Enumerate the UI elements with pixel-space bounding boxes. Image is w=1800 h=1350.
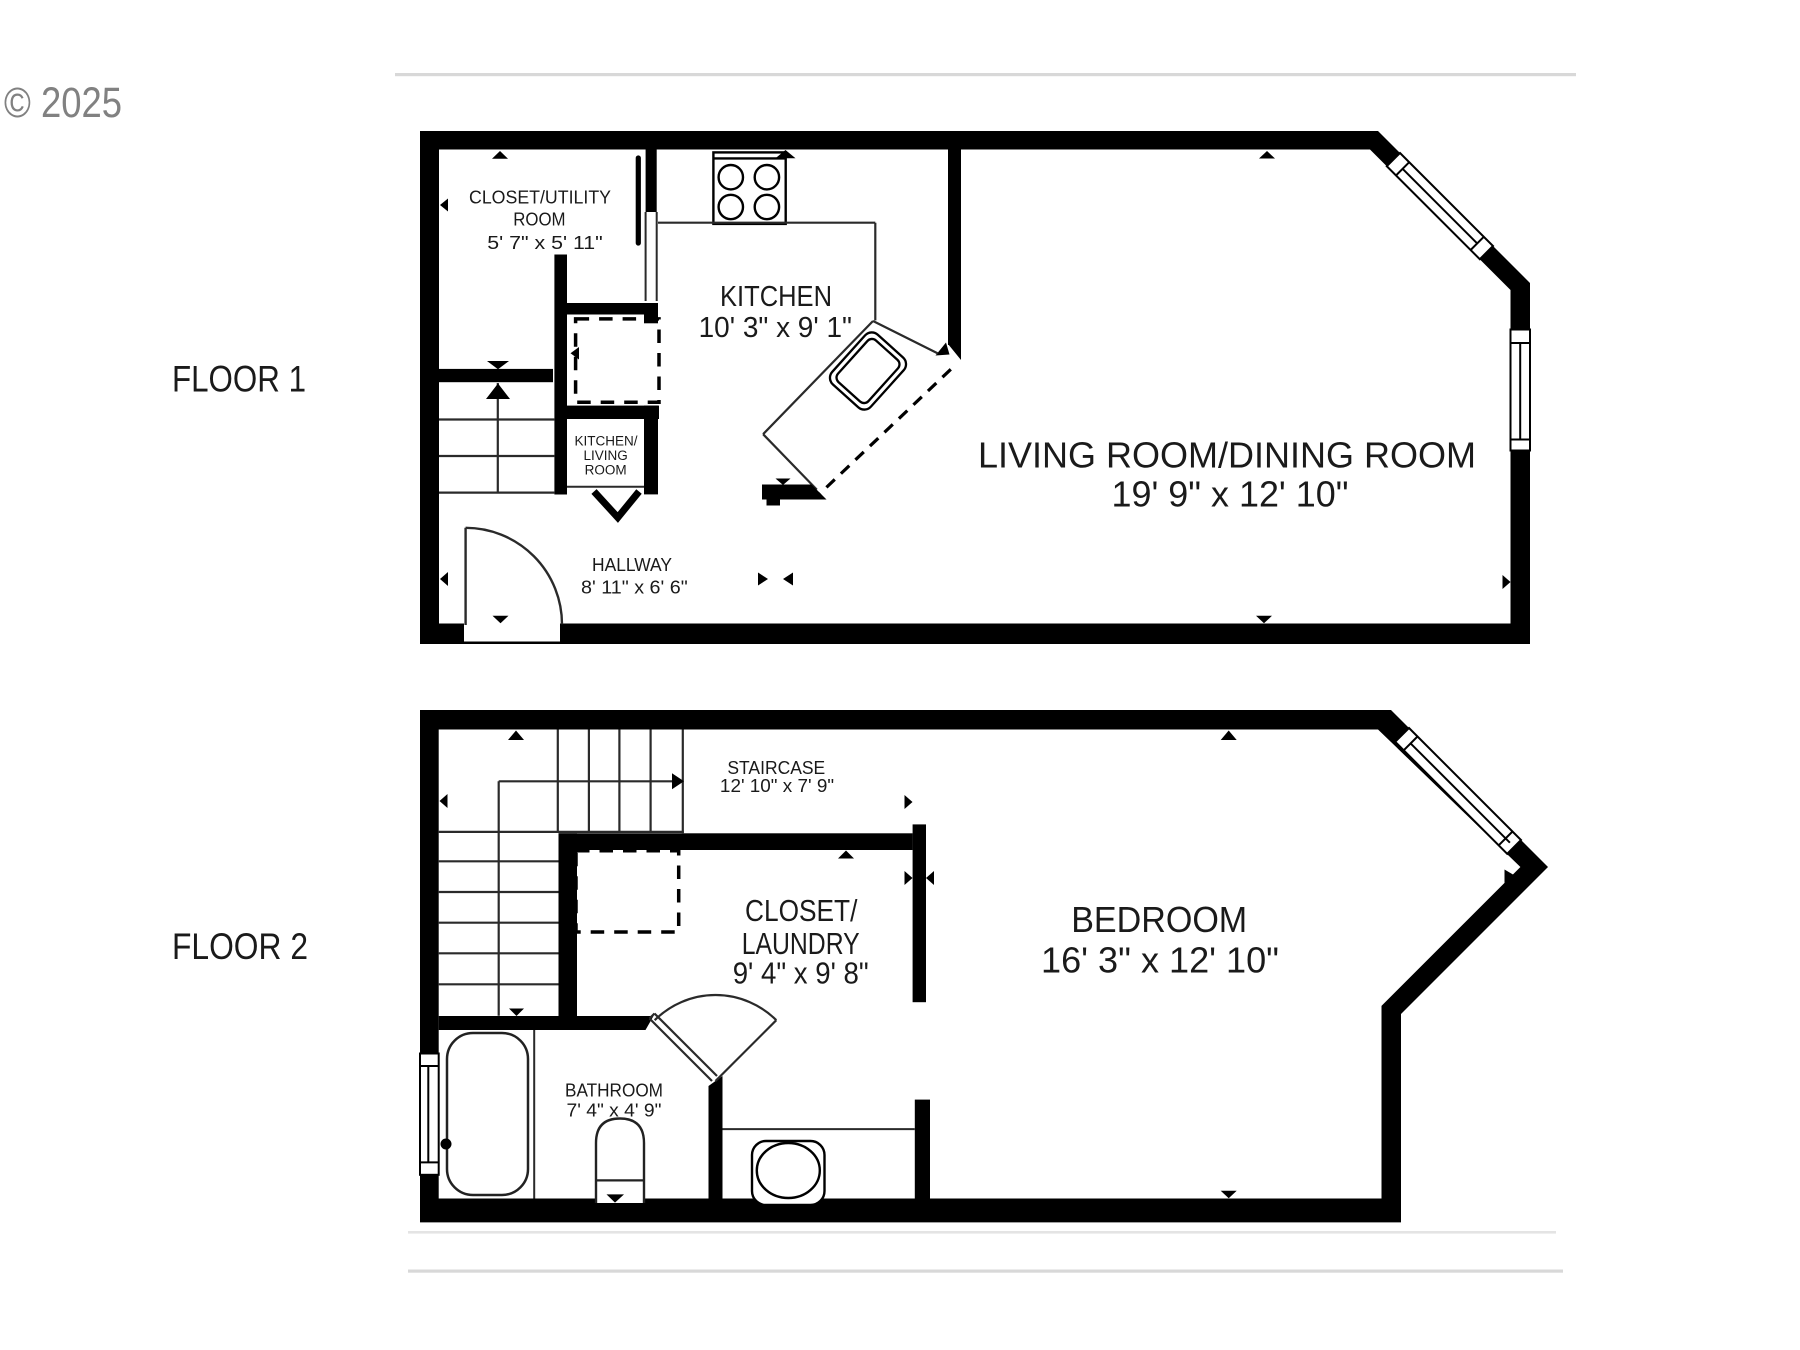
svg-text:KITCHEN/: KITCHEN/ <box>574 434 637 449</box>
svg-text:KITCHEN: KITCHEN <box>720 281 832 313</box>
svg-text:FLOOR 1: FLOOR 1 <box>172 359 306 400</box>
svg-text:8' 11" x 6' 6": 8' 11" x 6' 6" <box>581 576 688 597</box>
svg-text:BEDROOM: BEDROOM <box>1071 899 1247 940</box>
svg-text:LIVING: LIVING <box>583 448 627 463</box>
svg-text:9' 4" x 9' 8": 9' 4" x 9' 8" <box>733 956 869 991</box>
svg-text:16' 3" x 12' 10": 16' 3" x 12' 10" <box>1041 939 1279 980</box>
svg-text:LIVING ROOM/DINING ROOM: LIVING ROOM/DINING ROOM <box>978 435 1476 476</box>
svg-text:© 2025: © 2025 <box>4 79 122 127</box>
svg-text:5' 7" x 5' 11": 5' 7" x 5' 11" <box>487 232 603 253</box>
svg-text:HALLWAY: HALLWAY <box>592 554 672 575</box>
svg-text:CLOSET/UTILITY: CLOSET/UTILITY <box>469 186 611 207</box>
svg-text:ROOM: ROOM <box>585 462 627 477</box>
svg-text:7' 4" x 4' 9": 7' 4" x 4' 9" <box>567 1100 662 1121</box>
svg-text:10' 3" x 9' 1": 10' 3" x 9' 1" <box>699 312 852 344</box>
svg-text:FLOOR 2: FLOOR 2 <box>172 926 308 967</box>
svg-text:BATHROOM: BATHROOM <box>565 1079 663 1100</box>
svg-text:12' 10" x 7' 9": 12' 10" x 7' 9" <box>720 775 834 796</box>
svg-text:CLOSET/: CLOSET/ <box>745 893 858 928</box>
svg-text:19' 9" x 12' 10": 19' 9" x 12' 10" <box>1112 474 1349 515</box>
svg-text:ROOM: ROOM <box>513 209 565 230</box>
